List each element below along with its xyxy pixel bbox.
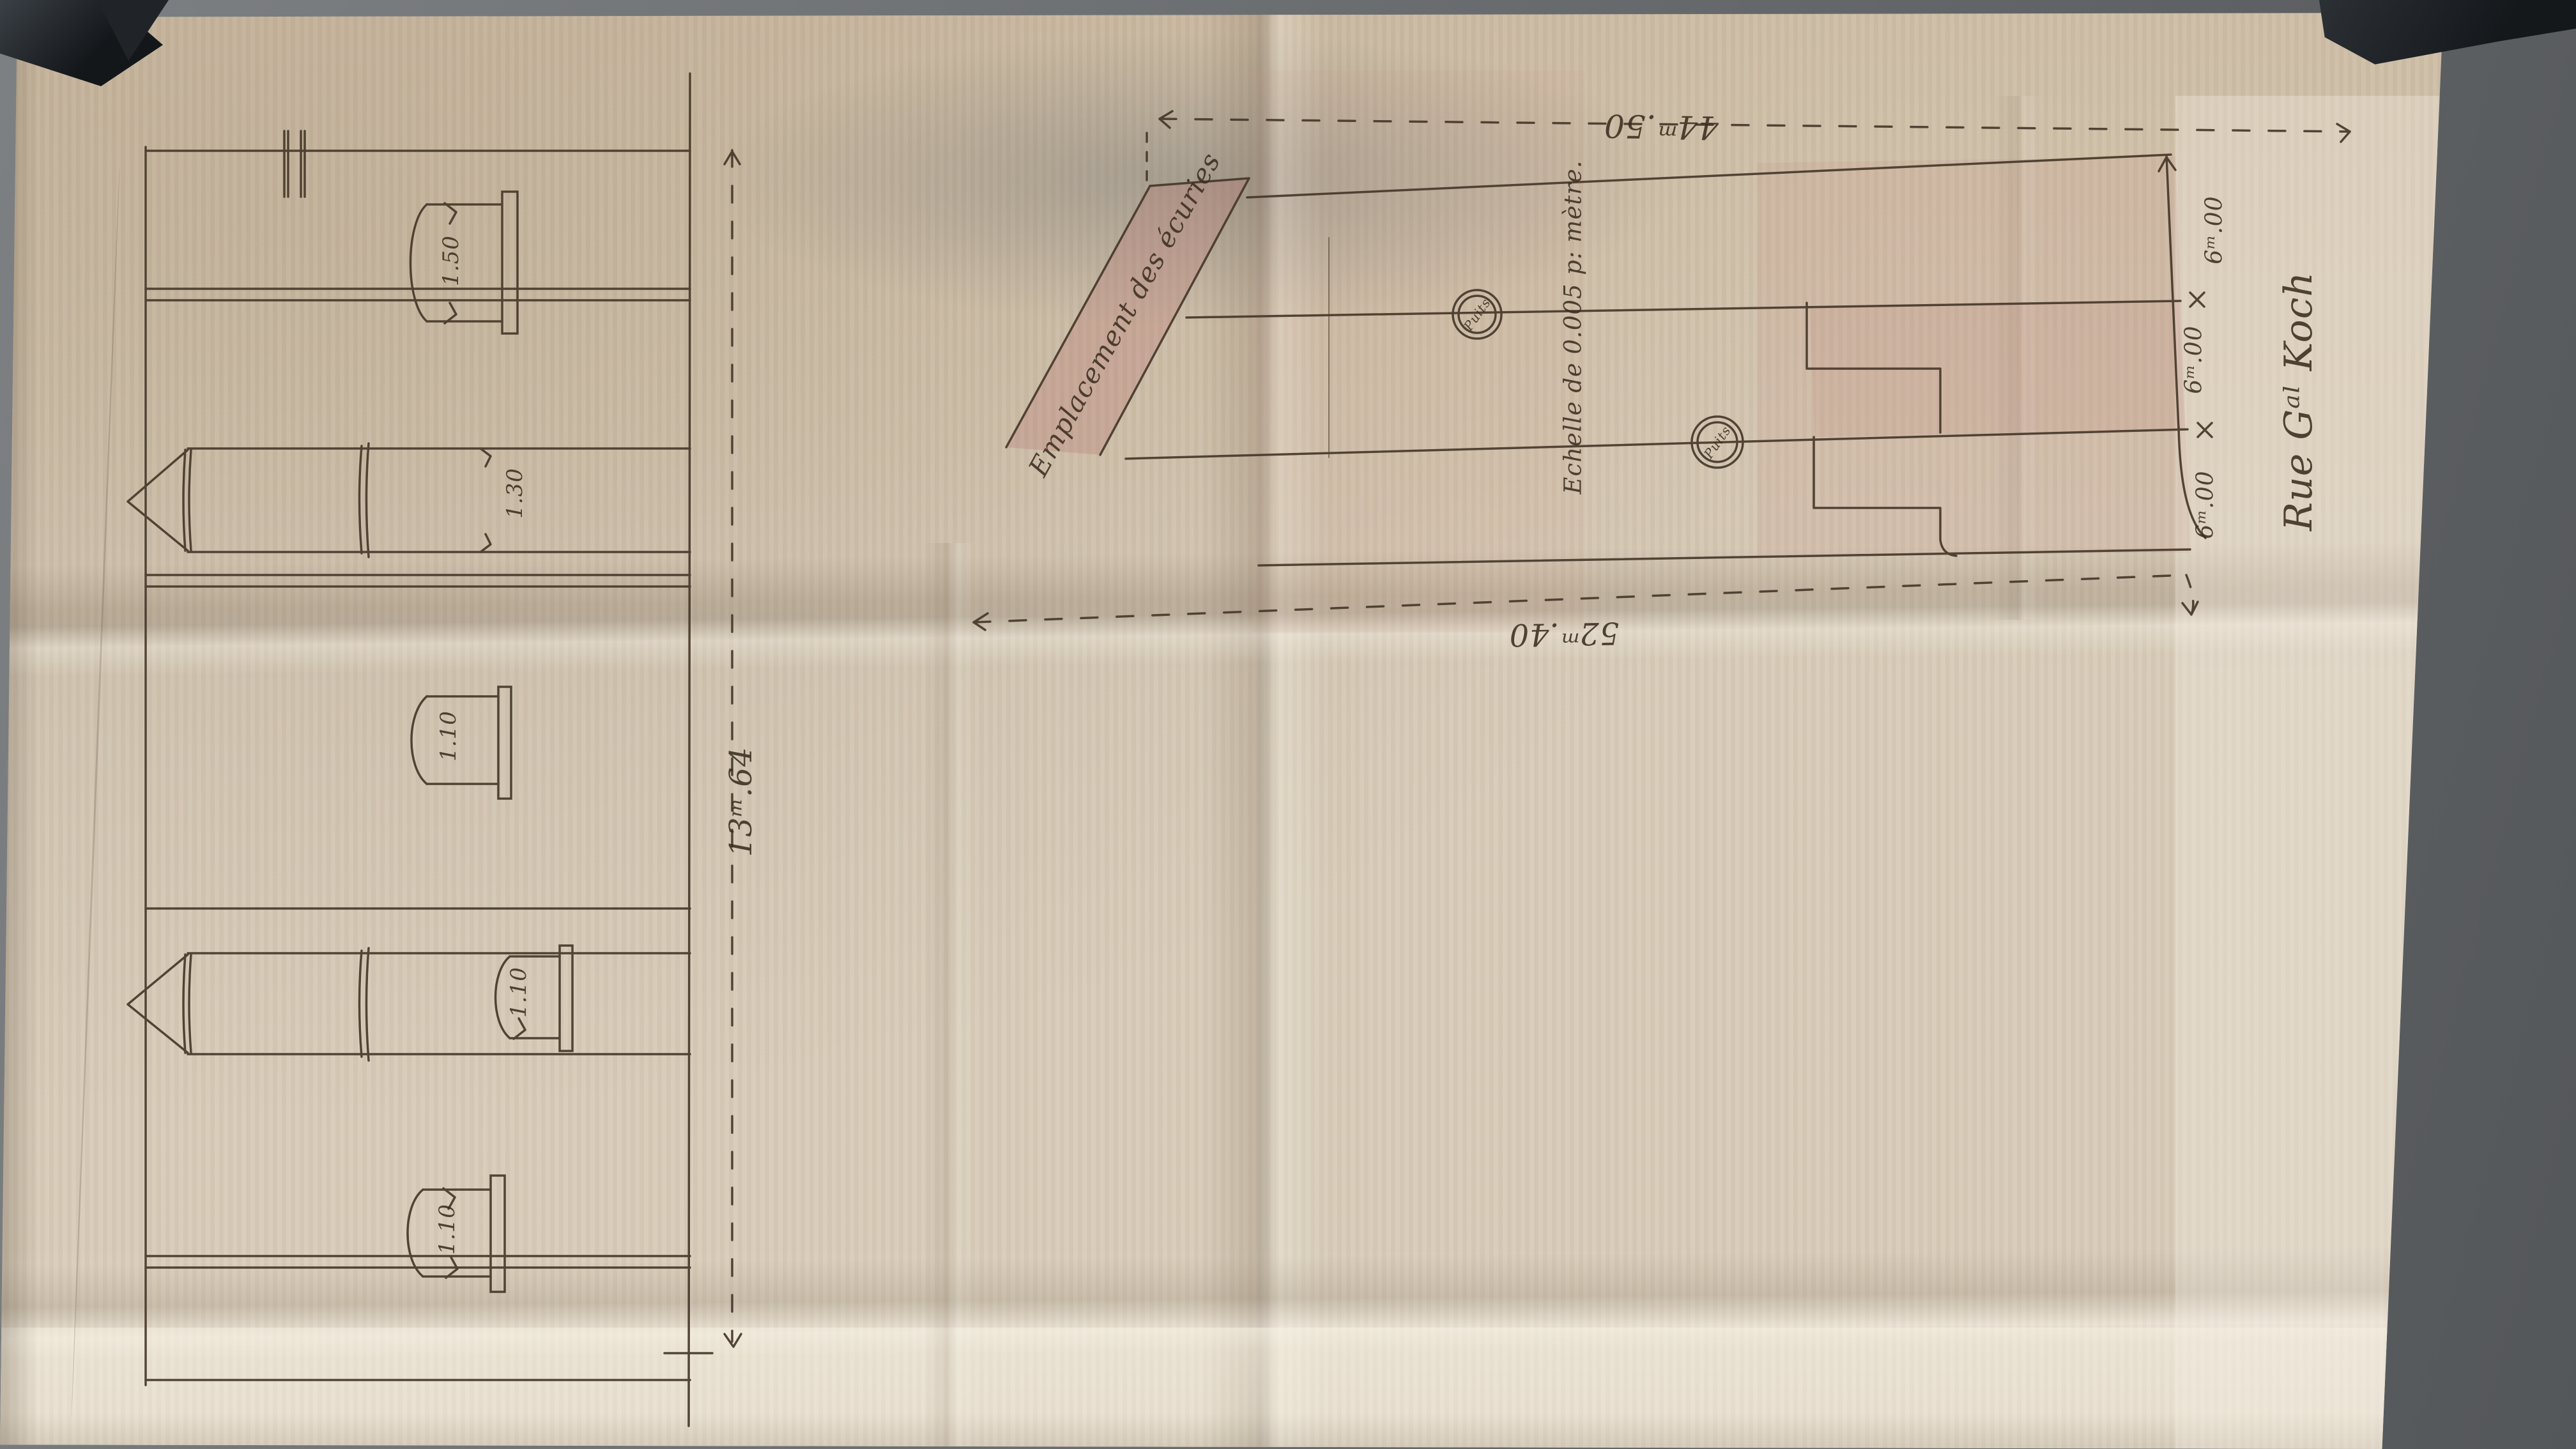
dim-vat-4: 1.10 — [434, 1204, 460, 1255]
dim-frontage-segment-2: 6ᵐ.00 — [2181, 325, 2207, 394]
dim-bottom-width: 52ᵐ.40 — [1508, 615, 1620, 652]
vat-2 — [411, 687, 511, 799]
x-mark-2 — [2198, 423, 2212, 437]
dim-vat-2: 1.10 — [436, 710, 461, 762]
wall-pair-1 — [146, 289, 690, 300]
dim-vat-3: 1.10 — [506, 967, 532, 1018]
tracing-paper-sheet: 44ᵐ.50 52ᵐ.40 13ᵐ.64 Emplacement des écu… — [0, 13, 2446, 1449]
dim-vat-1: 1.50 — [438, 235, 464, 286]
roof-flue-ticks — [284, 131, 305, 197]
dimension-tick — [514, 1018, 525, 1039]
dim-elevation-width: 13ᵐ.64 — [723, 747, 759, 857]
label-scale-note: Echelle de 0.005 p: mètre. — [1560, 160, 1587, 494]
wall-pair-2 — [146, 575, 690, 586]
ink-linework — [0, 13, 2446, 1449]
label-street-name: Rue Gᵃˡ Koch — [2276, 272, 2321, 531]
arrow-down — [2182, 602, 2198, 615]
photo-of-architectural-plan: 44ᵐ.50 52ᵐ.40 13ᵐ.64 Emplacement des écu… — [0, 0, 2576, 1449]
chimney-width-ticks — [480, 448, 491, 552]
dim-frontage-segment-3: 6ᵐ.00 — [2193, 470, 2219, 539]
x-mark-1 — [2190, 293, 2204, 307]
dim-chimney-width: 1.30 — [502, 468, 528, 519]
ground-line — [689, 73, 690, 1426]
arrow-right — [2337, 124, 2350, 142]
chimney-2 — [128, 948, 690, 1061]
vat-1 — [411, 192, 518, 333]
boundary-line-3 — [1259, 549, 2190, 565]
chimney-1 — [128, 443, 690, 557]
well-circles — [1453, 290, 1743, 468]
wall-pair-3 — [146, 1256, 690, 1268]
dim-top-width: 44ᵐ.50 — [1604, 107, 1719, 146]
dim-frontage-segment-1: 6ᵐ.00 — [2202, 195, 2228, 264]
